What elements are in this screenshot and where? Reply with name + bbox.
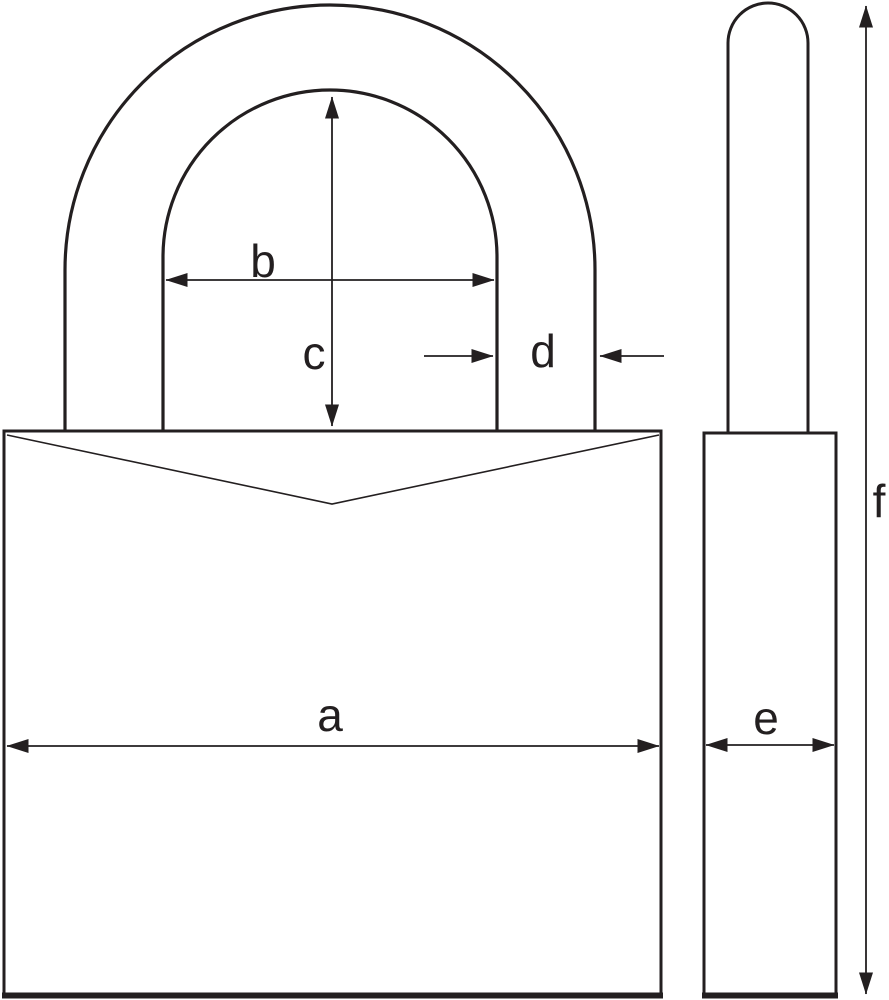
dimension-b: b — [166, 235, 494, 287]
dimension-annotations: a b c d e — [7, 6, 886, 994]
dimension-label-c: c — [303, 327, 326, 379]
dimension-f: f — [866, 6, 886, 994]
dimension-a: a — [7, 689, 659, 746]
dimension-label-f: f — [873, 475, 886, 527]
dimension-label-e: e — [753, 692, 779, 744]
side-view — [702, 3, 838, 996]
dimension-label-b: b — [250, 235, 276, 287]
front-shackle-inner-outline — [163, 90, 497, 432]
dimension-label-d: d — [530, 325, 556, 377]
dimension-e: e — [706, 692, 834, 745]
diagram-canvas: a b c d e — [0, 0, 889, 1000]
dimension-d: d — [424, 325, 664, 377]
front-shackle-outer-outline — [65, 5, 595, 432]
front-body-chamfer-line — [7, 435, 659, 504]
dimension-label-a: a — [317, 689, 343, 741]
padlock-dimension-diagram: a b c d e — [0, 0, 889, 1000]
side-shackle-outline — [728, 3, 808, 433]
dimension-c: c — [303, 97, 333, 426]
